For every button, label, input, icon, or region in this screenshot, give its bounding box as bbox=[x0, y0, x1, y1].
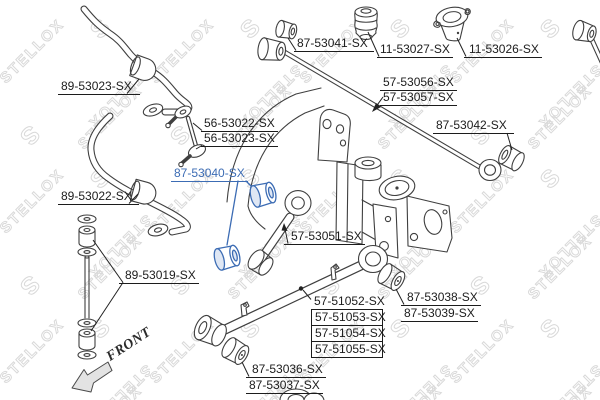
part-label-56-53023-sx[interactable]: 56-53023-SX bbox=[201, 131, 278, 147]
part-label-56-53022-sx[interactable]: 56-53022-SX bbox=[201, 116, 278, 132]
part-label-57-53057-sx[interactable]: 57-53057-SX bbox=[380, 90, 457, 106]
part-label-87-53040-sx-highlighted[interactable]: 87-53040-SX bbox=[171, 166, 248, 182]
part-label-87-53042-sx[interactable]: 87-53042-SX bbox=[433, 118, 514, 134]
part-label-57-53051-sx[interactable]: 57-53051-SX bbox=[284, 229, 365, 245]
part-label-11-53026-sx[interactable]: 11-53026-SX bbox=[464, 42, 542, 58]
part-label-57-51053-sx[interactable]: 57-51053-SX bbox=[311, 309, 383, 326]
part-label-57-51052-sx[interactable]: 57-51052-SX bbox=[311, 294, 383, 310]
part-label-89-53023-sx[interactable]: 89-53023-SX bbox=[58, 79, 140, 95]
part-label-87-53037-sx[interactable]: 87-53037-SX bbox=[246, 378, 323, 394]
part-label-89-53019-sx[interactable]: 89-53019-SX bbox=[119, 268, 199, 284]
part-label-57-53056-sx[interactable]: 57-53056-SX bbox=[380, 75, 457, 91]
parts-diagram: STELLOX S STELLOX STELLOX S bbox=[0, 0, 600, 400]
part-label-87-53038-sx[interactable]: 87-53038-SX bbox=[401, 290, 481, 306]
part-label-57-51055-sx[interactable]: 57-51055-SX bbox=[311, 341, 383, 358]
part-label-57-51054-sx[interactable]: 57-51054-SX bbox=[311, 325, 383, 342]
part-label-87-53036-sx[interactable]: 87-53036-SX bbox=[246, 362, 326, 378]
bump-stop-11-53027 bbox=[355, 7, 378, 40]
part-label-87-53039-sx[interactable]: 87-53039-SX bbox=[401, 306, 478, 322]
part-label-stack-57-5105x: 57-51052-SX 57-51053-SX 57-51054-SX 57-5… bbox=[311, 294, 383, 358]
part-label-87-53041-sx[interactable]: 87-53041-SX bbox=[294, 36, 374, 52]
part-label-11-53027-sx[interactable]: 11-53027-SX bbox=[377, 42, 453, 58]
part-label-89-53022-sx[interactable]: 89-53022-SX bbox=[58, 189, 139, 205]
